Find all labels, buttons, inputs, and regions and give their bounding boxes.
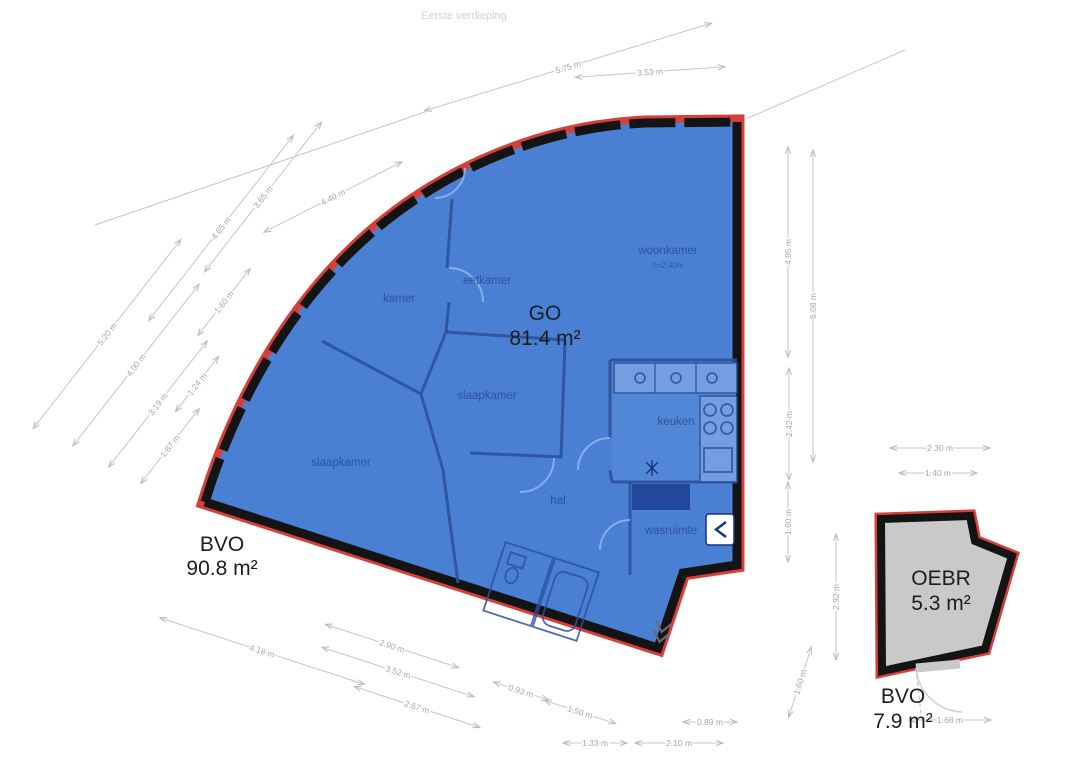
dimension-label: 0.93 m xyxy=(507,682,535,700)
dimension: 1.24 m xyxy=(172,353,223,414)
dimension-label: 1.87 m xyxy=(158,433,182,460)
dimension: 2.30 m xyxy=(890,443,990,453)
dimension-label: 1.33 m xyxy=(582,738,608,748)
dimension-label: 2.30 m xyxy=(927,443,953,453)
dimension: 1.40 m xyxy=(899,468,977,478)
room-label-hal: hal xyxy=(550,495,565,507)
bvo-oebr-value: 7.9 m² xyxy=(873,710,933,733)
dimension: 1.60 m xyxy=(783,482,793,562)
dimension-label: 3.65 m xyxy=(251,184,275,211)
dimension: 2.67 m xyxy=(353,682,482,732)
dimension: 6.08 m xyxy=(808,150,818,462)
dimension-label: 2.67 m xyxy=(403,698,431,716)
dimension: 3.19 m xyxy=(105,338,211,470)
dimension: 1.60 m xyxy=(784,645,816,718)
dimension-label: 1.68 m xyxy=(937,715,963,725)
dimension-label: 0.89 m xyxy=(697,717,723,727)
go-value: 81.4 m² xyxy=(509,327,580,350)
floorplan-page: Eerste verdieping 5.75 m3.53 m5.20 m4.00… xyxy=(0,0,1080,764)
dimension: 4.65 m xyxy=(145,132,298,323)
room-label-slaapkamer: slaapkamer xyxy=(311,457,371,469)
dimension-label: 5.75 m xyxy=(554,58,582,75)
dimension: 4.95 m xyxy=(783,147,793,357)
oebr-value: 5.3 m² xyxy=(911,592,971,615)
bvo-main-code: BVO xyxy=(200,533,244,556)
dimension-label: 1.60 m xyxy=(791,668,809,696)
dimension-label: 2.90 m xyxy=(378,637,406,655)
dimension: 2.92 m xyxy=(831,534,841,660)
room-label-kamer: kamer xyxy=(383,293,415,305)
oebr-code: OEBR xyxy=(911,567,971,590)
dimension: 1.33 m xyxy=(563,738,627,748)
dimension: 3.65 m xyxy=(201,119,326,275)
room-label-wasruimte: wasruimte xyxy=(644,525,697,537)
dimension-label: 1.60 m xyxy=(783,509,793,535)
dimension-label: 4.65 m xyxy=(209,215,233,242)
dimension-label: 1.50 m xyxy=(566,703,594,721)
dimension-label: 1.40 m xyxy=(925,468,951,478)
dimension-label: 4.95 m xyxy=(783,239,793,265)
dimension: 0.89 m xyxy=(683,717,737,727)
dimension-label: 3.53 m xyxy=(637,66,664,78)
dimension: 2.42 m xyxy=(784,368,794,480)
dimension: 1.50 m xyxy=(543,696,617,729)
dimension-label: 4.00 m xyxy=(124,352,148,379)
dimension: 1.60 m xyxy=(194,265,254,338)
dimension-label: 5.20 m xyxy=(95,321,119,348)
dimension-label: 2.92 m xyxy=(831,584,841,610)
go-code: GO xyxy=(529,302,562,325)
dimension-label: 1.60 m xyxy=(212,289,236,316)
bvo-main-value: 90.8 m² xyxy=(186,557,257,580)
dimension-label: 4.18 m xyxy=(248,642,276,660)
dimension-label: 2.10 m xyxy=(666,738,692,748)
washing-machine-icon xyxy=(706,514,734,545)
dimension-label: 3.52 m xyxy=(384,663,412,681)
dimension: 0.93 m xyxy=(492,677,550,704)
dimension: 2.10 m xyxy=(635,738,723,748)
floorplan-canvas: Eerste verdieping 5.75 m3.53 m5.20 m4.00… xyxy=(0,0,1080,764)
room-label-keuken: keuken xyxy=(657,416,694,428)
room-label-eetkamer: eetkamer xyxy=(463,275,511,287)
dimension: 5.75 m xyxy=(423,18,713,115)
main-apartment-shape xyxy=(205,122,737,648)
dimension-label: 4.40 m xyxy=(319,187,347,208)
room-sublabel: h=2.40m xyxy=(652,261,684,270)
page-title: Eerste verdieping xyxy=(421,10,507,22)
room-label-woonkamer: woonkamer xyxy=(637,245,698,257)
room-label-slaapkamer: slaapkamer xyxy=(457,390,517,402)
dimension: 4.00 m xyxy=(69,281,203,449)
bvo-oebr-code: BVO xyxy=(881,685,925,708)
dimension-label: 2.42 m xyxy=(784,411,794,437)
dimension-label: 6.08 m xyxy=(808,293,818,319)
dimension: 3.53 m xyxy=(575,62,725,82)
dimension-label: 1.24 m xyxy=(185,371,209,398)
dimension-label: 3.19 m xyxy=(146,391,170,418)
